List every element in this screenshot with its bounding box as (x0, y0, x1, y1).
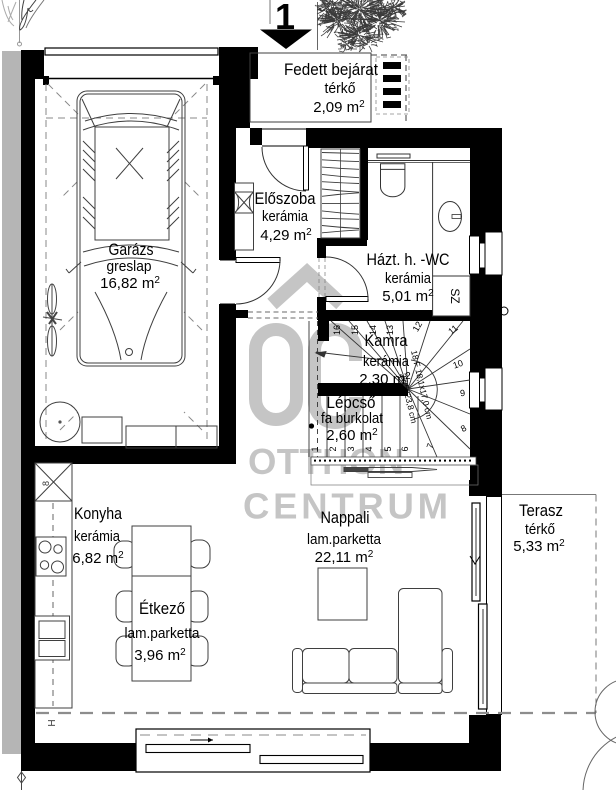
svg-text:Házt. h. -WC: Házt. h. -WC (367, 250, 450, 269)
svg-text:Étkező: Étkező (139, 599, 185, 618)
svg-text:3,96 m2: 3,96 m2 (134, 647, 186, 664)
svg-text:térkő: térkő (525, 521, 555, 538)
svg-text:2,60 m2: 2,60 m2 (326, 427, 378, 444)
svg-text:16: 16 (332, 325, 342, 335)
svg-text:Nappali: Nappali (321, 508, 370, 527)
svg-text:3: 3 (346, 446, 356, 451)
svg-text:Kamra: Kamra (365, 331, 408, 350)
svg-text:greslap: greslap (107, 258, 152, 275)
svg-text:2,09 m2: 2,09 m2 (313, 99, 365, 116)
svg-text:Terasz: Terasz (519, 501, 563, 520)
svg-text:kerámia: kerámia (385, 270, 432, 287)
svg-text:Garázs: Garázs (109, 240, 154, 259)
svg-text:5,33 m2: 5,33 m2 (513, 538, 565, 555)
svg-text:Konyha: Konyha (74, 504, 122, 523)
svg-text:5: 5 (383, 446, 393, 451)
svg-text:15: 15 (350, 325, 360, 335)
svg-text:8: 8 (41, 481, 51, 486)
svg-text:2: 2 (328, 446, 338, 451)
svg-text:kerámia: kerámia (363, 353, 410, 370)
svg-text:Előszoba: Előszoba (255, 189, 316, 208)
svg-text:2,30 m2: 2,30 m2 (359, 371, 411, 388)
svg-text:4: 4 (364, 446, 374, 451)
svg-text:H: H (47, 719, 58, 726)
svg-text:6: 6 (400, 446, 410, 451)
svg-text:fa burkolat: fa burkolat (321, 410, 384, 427)
svg-text:22,11 m2: 22,11 m2 (315, 549, 374, 566)
svg-text:lam.parketta: lam.parketta (125, 625, 201, 642)
svg-text:kerámia: kerámia (74, 528, 121, 545)
svg-text:6,82 m2: 6,82 m2 (72, 550, 124, 567)
svg-text:kerámia: kerámia (262, 208, 309, 225)
svg-text:térkő: térkő (325, 80, 356, 97)
svg-text:4,29 m2: 4,29 m2 (260, 227, 312, 244)
svg-text:16,82 m2: 16,82 m2 (100, 275, 160, 292)
svg-text:SZ: SZ (448, 288, 462, 303)
svg-text:lam.parketta: lam.parketta (307, 531, 382, 548)
svg-text:5,01 m2: 5,01 m2 (382, 288, 434, 305)
svg-text:Fedett bejárat: Fedett bejárat (284, 60, 378, 79)
svg-text:1: 1 (310, 446, 320, 451)
